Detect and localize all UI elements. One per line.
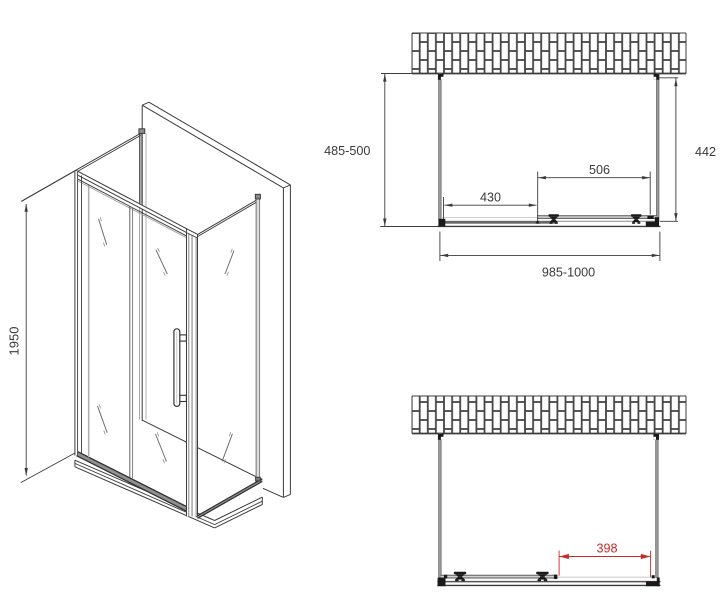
svg-text:1950: 1950 xyxy=(7,327,22,356)
svg-text:506: 506 xyxy=(589,163,610,177)
svg-text:485-500: 485-500 xyxy=(324,144,370,158)
svg-text:430: 430 xyxy=(480,191,501,205)
svg-text:985-1000: 985-1000 xyxy=(542,266,595,280)
svg-text:398: 398 xyxy=(596,541,617,555)
svg-text:442: 442 xyxy=(695,145,716,159)
